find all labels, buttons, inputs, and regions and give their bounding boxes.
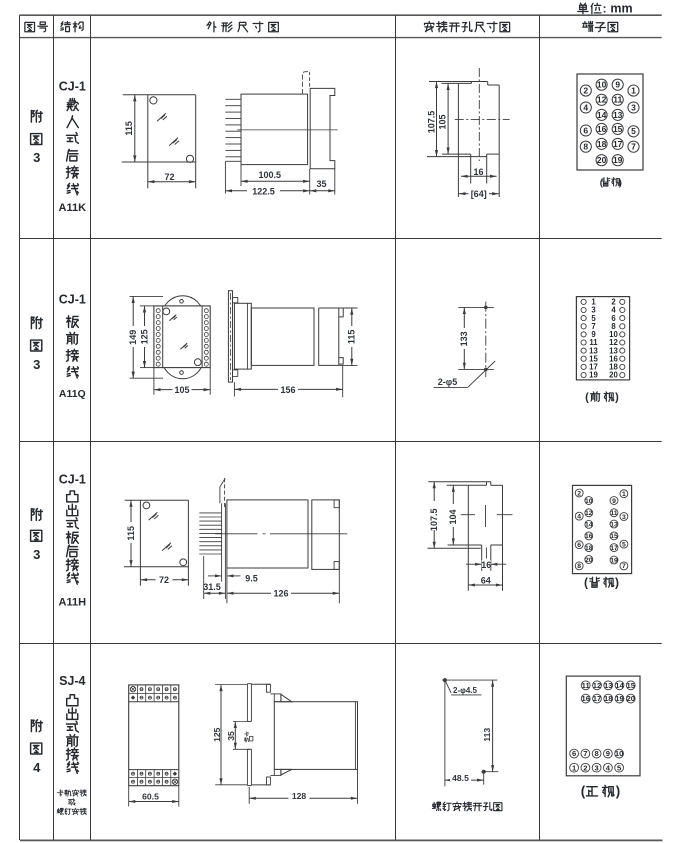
svg-text:9: 9 <box>606 749 610 758</box>
svg-text:107.5: 107.5 <box>429 509 439 532</box>
svg-text:18: 18 <box>597 139 607 149</box>
svg-text:7: 7 <box>583 749 587 758</box>
svg-text:126: 126 <box>273 589 288 599</box>
svg-text:4: 4 <box>577 513 581 520</box>
svg-text:105: 105 <box>174 385 189 395</box>
svg-text:2: 2 <box>583 86 588 96</box>
svg-text:100.5: 100.5 <box>259 170 282 180</box>
svg-text:11: 11 <box>582 681 591 690</box>
svg-text:7: 7 <box>631 142 636 152</box>
svg-text:122.5: 122.5 <box>252 186 275 196</box>
svg-text:8: 8 <box>577 563 581 570</box>
svg-text:4: 4 <box>583 102 588 112</box>
svg-text:128: 128 <box>292 791 307 801</box>
svg-text:11: 11 <box>613 95 622 105</box>
svg-text:149: 149 <box>128 330 138 345</box>
svg-text:6: 6 <box>583 125 588 135</box>
svg-text:13: 13 <box>613 110 623 120</box>
svg-text:16: 16 <box>597 124 607 134</box>
svg-text:60.5: 60.5 <box>142 791 159 801</box>
svg-text:156: 156 <box>280 385 295 395</box>
svg-text:115: 115 <box>347 330 357 345</box>
svg-text:CJ-1: CJ-1 <box>59 473 86 487</box>
svg-text:3: 3 <box>631 102 636 112</box>
svg-text:16: 16 <box>473 167 483 177</box>
svg-text:3: 3 <box>33 547 40 562</box>
svg-text:3: 3 <box>622 514 626 521</box>
svg-text:105: 105 <box>438 114 448 129</box>
svg-text:2: 2 <box>583 763 587 772</box>
svg-text:35: 35 <box>226 731 236 741</box>
svg-text:3: 3 <box>594 763 598 772</box>
svg-text:10: 10 <box>597 80 607 90</box>
svg-text:11: 11 <box>610 510 617 517</box>
svg-text:(: ( <box>581 784 586 799</box>
svg-text:6: 6 <box>572 749 576 758</box>
svg-text:16: 16 <box>585 533 593 540</box>
svg-text:2-φ4.5: 2-φ4.5 <box>453 686 478 695</box>
svg-text:5: 5 <box>622 541 626 548</box>
svg-text:104: 104 <box>448 509 458 524</box>
svg-text:20: 20 <box>585 557 593 564</box>
svg-text:6: 6 <box>577 542 581 549</box>
svg-text:107.5: 107.5 <box>426 111 436 134</box>
svg-text:20: 20 <box>609 371 618 380</box>
svg-text:20: 20 <box>597 155 607 165</box>
svg-text:15: 15 <box>613 124 623 134</box>
svg-text:1: 1 <box>631 86 636 96</box>
svg-text:72: 72 <box>164 172 174 182</box>
svg-text:A11H: A11H <box>59 597 87 609</box>
svg-text:113: 113 <box>482 728 492 742</box>
svg-text:64: 64 <box>481 575 491 585</box>
svg-text:12: 12 <box>585 510 593 517</box>
svg-text:): ) <box>619 177 622 188</box>
svg-text:15: 15 <box>626 681 635 690</box>
svg-text:12: 12 <box>593 681 601 690</box>
svg-text:10: 10 <box>615 749 623 758</box>
svg-text:(: ( <box>585 392 589 404</box>
svg-text:8: 8 <box>583 142 588 152</box>
svg-text:): ) <box>616 784 621 799</box>
svg-text:10: 10 <box>585 498 593 505</box>
svg-text:13: 13 <box>604 681 612 690</box>
svg-text:12: 12 <box>597 95 607 105</box>
svg-text:2-φ5: 2-φ5 <box>438 377 457 387</box>
svg-text:19: 19 <box>589 371 598 380</box>
svg-text:31.5: 31.5 <box>203 582 221 592</box>
svg-text:2: 2 <box>577 490 581 497</box>
svg-text:14: 14 <box>597 110 607 120</box>
svg-text:35: 35 <box>316 179 326 189</box>
svg-text:8: 8 <box>594 749 598 758</box>
svg-text:CJ-1: CJ-1 <box>59 293 86 307</box>
svg-text:18: 18 <box>585 545 593 552</box>
svg-text:17: 17 <box>613 139 623 149</box>
svg-text::: : <box>603 4 607 16</box>
svg-text:19: 19 <box>615 694 623 703</box>
svg-text:17: 17 <box>610 545 618 552</box>
svg-text:19: 19 <box>613 155 623 165</box>
svg-text:(: ( <box>584 576 588 590</box>
svg-text:115: 115 <box>124 121 134 136</box>
svg-text:3: 3 <box>33 357 40 372</box>
svg-text:16: 16 <box>481 560 491 570</box>
svg-text:125: 125 <box>212 727 222 742</box>
svg-text:): ) <box>615 392 619 404</box>
svg-text:14: 14 <box>615 681 624 690</box>
svg-text:[64]: [64] <box>471 189 487 199</box>
svg-text:CJ-1: CJ-1 <box>59 80 86 94</box>
svg-text:125: 125 <box>139 329 149 344</box>
svg-text:16: 16 <box>581 694 589 703</box>
svg-text:): ) <box>615 576 619 590</box>
svg-text:mm: mm <box>610 2 632 16</box>
svg-text:5: 5 <box>631 126 636 136</box>
svg-text:72: 72 <box>159 575 169 585</box>
svg-text:20: 20 <box>626 694 634 703</box>
svg-text:7: 7 <box>622 563 626 570</box>
svg-text:9: 9 <box>615 80 620 90</box>
svg-text:115: 115 <box>126 526 136 541</box>
svg-text:3: 3 <box>33 150 40 165</box>
svg-text:4: 4 <box>33 760 41 775</box>
svg-text:SJ-4: SJ-4 <box>59 674 85 688</box>
svg-text:9: 9 <box>612 498 616 505</box>
svg-text:A11Q: A11Q <box>59 388 86 400</box>
svg-text:17: 17 <box>593 694 601 703</box>
svg-text:19: 19 <box>610 557 618 564</box>
svg-text:13: 13 <box>610 521 618 528</box>
svg-text:133: 133 <box>459 331 469 346</box>
svg-text:9.5: 9.5 <box>245 573 258 583</box>
svg-text:15: 15 <box>610 533 618 540</box>
svg-text:A11K: A11K <box>59 202 87 214</box>
svg-text:1: 1 <box>622 491 626 498</box>
svg-text:18: 18 <box>604 694 612 703</box>
svg-text:14: 14 <box>585 522 593 529</box>
svg-text:48.5: 48.5 <box>452 773 469 783</box>
